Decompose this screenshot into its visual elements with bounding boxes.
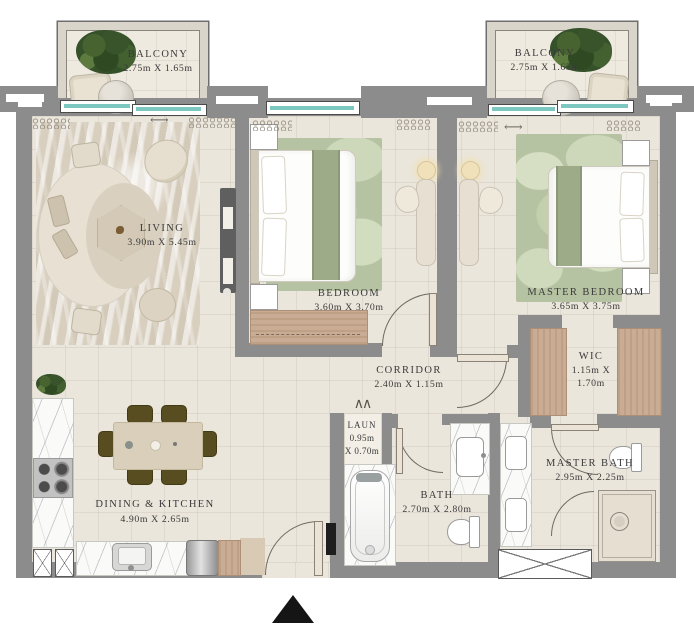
wall	[613, 315, 660, 328]
laundry-dims-1: 0.95m	[340, 434, 384, 443]
balcony-left-dims: 2.75m X 1.65m	[88, 64, 228, 74]
nightstand-icon	[622, 140, 650, 166]
wall	[597, 414, 660, 428]
window-glass	[561, 104, 628, 108]
shaft-box	[498, 549, 592, 579]
laundry-dims-2: X 0.70m	[340, 447, 384, 456]
wall	[518, 315, 562, 328]
wall	[660, 96, 676, 578]
wall	[437, 116, 457, 343]
sliding-door-arrow-icon: ⟷	[504, 120, 523, 133]
laundry-label: LAUN	[340, 421, 384, 430]
wardrobe-rail	[256, 334, 360, 336]
wall	[235, 116, 249, 357]
kitchen-cabinet-icon	[33, 549, 52, 577]
desk-icon	[416, 179, 436, 266]
master-bath-door-leaf	[551, 424, 599, 431]
bathtub-inner	[355, 476, 385, 555]
bedroom-dims: 3.60m X 3.70m	[287, 303, 411, 313]
wall	[518, 315, 530, 417]
window-glass	[492, 107, 555, 111]
corridor-label: CORRIDOR	[347, 366, 471, 377]
nightstand-icon	[250, 284, 278, 310]
faucet	[481, 453, 486, 458]
pillow	[261, 218, 287, 277]
window-glass	[270, 106, 354, 110]
master-bedroom-door-leaf	[457, 354, 509, 362]
sink-icon	[456, 437, 484, 477]
living-dims: 3.90m X 5.45m	[100, 238, 224, 248]
corridor-dims: 2.40m X 1.15m	[347, 380, 471, 390]
floor-plan: ⟷ ⟷ ∧∧	[0, 0, 694, 640]
tub-headrest	[356, 473, 382, 482]
bedroom-door-leaf	[429, 293, 437, 346]
master-bath-label: MASTER BATH	[511, 459, 669, 470]
entry-panel	[326, 523, 336, 555]
tv-console-detail	[223, 207, 233, 229]
bifold-door-icon: ∧∧	[344, 398, 380, 412]
lamp-icon	[461, 161, 480, 180]
table-decor	[173, 442, 177, 446]
pillow	[261, 156, 287, 215]
curtain-symbol	[32, 118, 70, 129]
wall-slot	[427, 97, 472, 105]
bath-door-leaf	[396, 428, 403, 474]
wardrobe-icon	[250, 310, 368, 345]
curtain-symbol	[252, 120, 292, 131]
bath-label: BATH	[375, 491, 499, 502]
bed-runner	[312, 150, 340, 280]
wall	[249, 343, 382, 357]
tv-console-detail	[223, 258, 233, 284]
kitchen-cabinet-wood	[218, 540, 241, 576]
lamp-icon	[417, 161, 436, 180]
window-glass	[64, 104, 130, 108]
wall	[390, 414, 398, 428]
kitchen-cabinet-icon	[55, 549, 74, 577]
wall-slot	[650, 98, 672, 106]
table-decor	[150, 440, 161, 451]
side-table-icon	[70, 141, 101, 169]
plant-icon	[36, 374, 66, 395]
fridge-icon	[186, 540, 219, 576]
tub-drain	[365, 545, 375, 555]
bath-dims: 2.70m X 2.80m	[375, 505, 499, 515]
dining-kitchen-dims: 4.90m X 2.65m	[93, 515, 217, 525]
master-bath-dims: 2.95m X 2.25m	[511, 473, 669, 483]
living-label: LIVING	[100, 224, 224, 235]
wall	[16, 96, 32, 578]
tv-console-detail	[223, 288, 231, 296]
bedroom-label: BEDROOM	[287, 289, 411, 300]
bed-runner	[556, 166, 582, 266]
toilet-tank	[469, 516, 480, 548]
curtain-symbol	[396, 119, 432, 130]
wall-slot	[18, 98, 42, 107]
sliding-door-arrow-icon: ⟷	[150, 113, 169, 126]
side-table-icon	[70, 307, 102, 336]
entry-marker	[272, 595, 314, 623]
curtain-symbol	[458, 121, 498, 132]
wic-dims-2: 1.70m	[549, 379, 633, 389]
window-glass	[136, 107, 201, 111]
wic-dims-1: 1.15m X	[549, 366, 633, 376]
kitchen-sink-basin	[118, 547, 146, 565]
ottoman-icon	[139, 288, 176, 322]
sink-icon	[505, 498, 527, 532]
stove-icon	[33, 458, 73, 498]
wall-slot	[216, 96, 258, 104]
balcony-right-label: BALCONY	[475, 49, 615, 60]
shower-head-icon	[610, 512, 629, 531]
desk-icon	[459, 179, 479, 266]
table-decor	[125, 441, 133, 449]
wic-label: WIC	[549, 352, 633, 363]
master-bedroom-dims: 3.65m X 3.75m	[507, 302, 665, 312]
balcony-right-dims: 2.75m X 1.65m	[475, 63, 615, 73]
wall-stub	[240, 538, 265, 575]
faucet	[128, 565, 134, 571]
balcony-left-label: BALCONY	[88, 50, 228, 61]
dining-kitchen-label: DINING & KITCHEN	[93, 500, 217, 511]
pillow	[619, 172, 645, 217]
entry-door-leaf	[314, 521, 323, 576]
pillow	[619, 218, 645, 263]
master-bedroom-label: MASTER BEDROOM	[507, 288, 665, 299]
wall	[530, 414, 551, 428]
curtain-symbol	[606, 120, 642, 131]
curtain-symbol	[188, 117, 238, 128]
